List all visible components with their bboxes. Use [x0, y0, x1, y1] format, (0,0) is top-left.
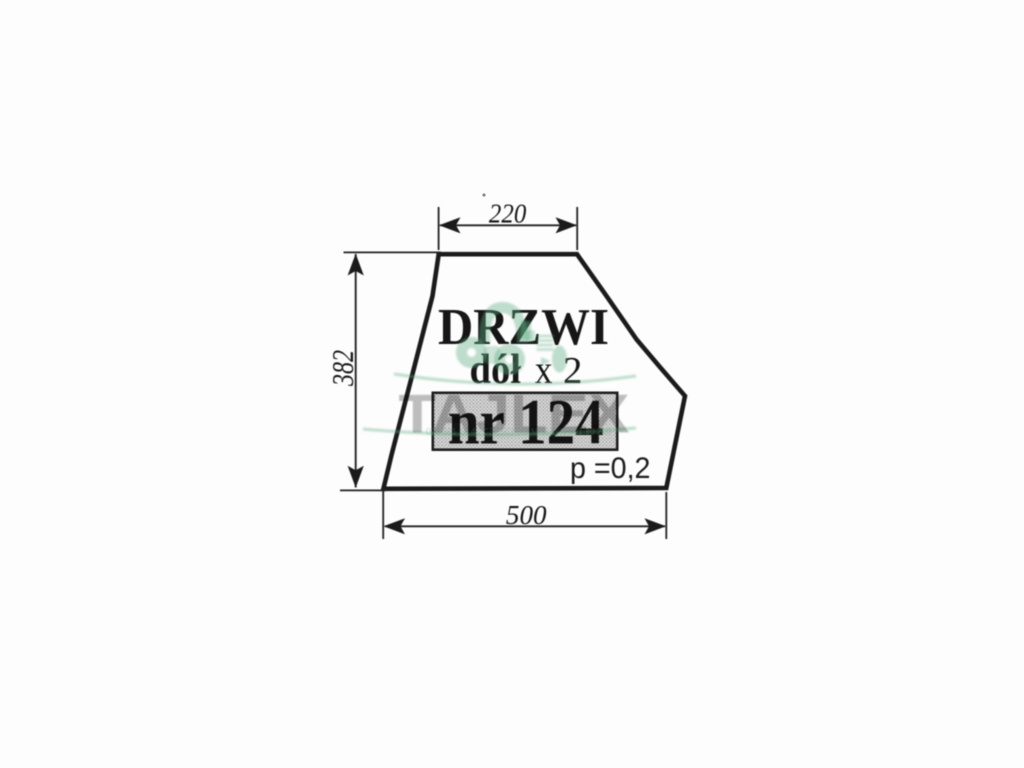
svg-text:p =0,2: p =0,2 — [570, 452, 651, 485]
svg-text:220: 220 — [489, 198, 527, 228]
svg-text:500: 500 — [506, 500, 547, 530]
svg-text:382: 382 — [325, 350, 360, 387]
svg-text:022 501 10 46 CZĘŚCI DO MASZY: 022 501 10 46 CZĘŚCI DO MASZYN 501 10 21… — [426, 426, 611, 438]
